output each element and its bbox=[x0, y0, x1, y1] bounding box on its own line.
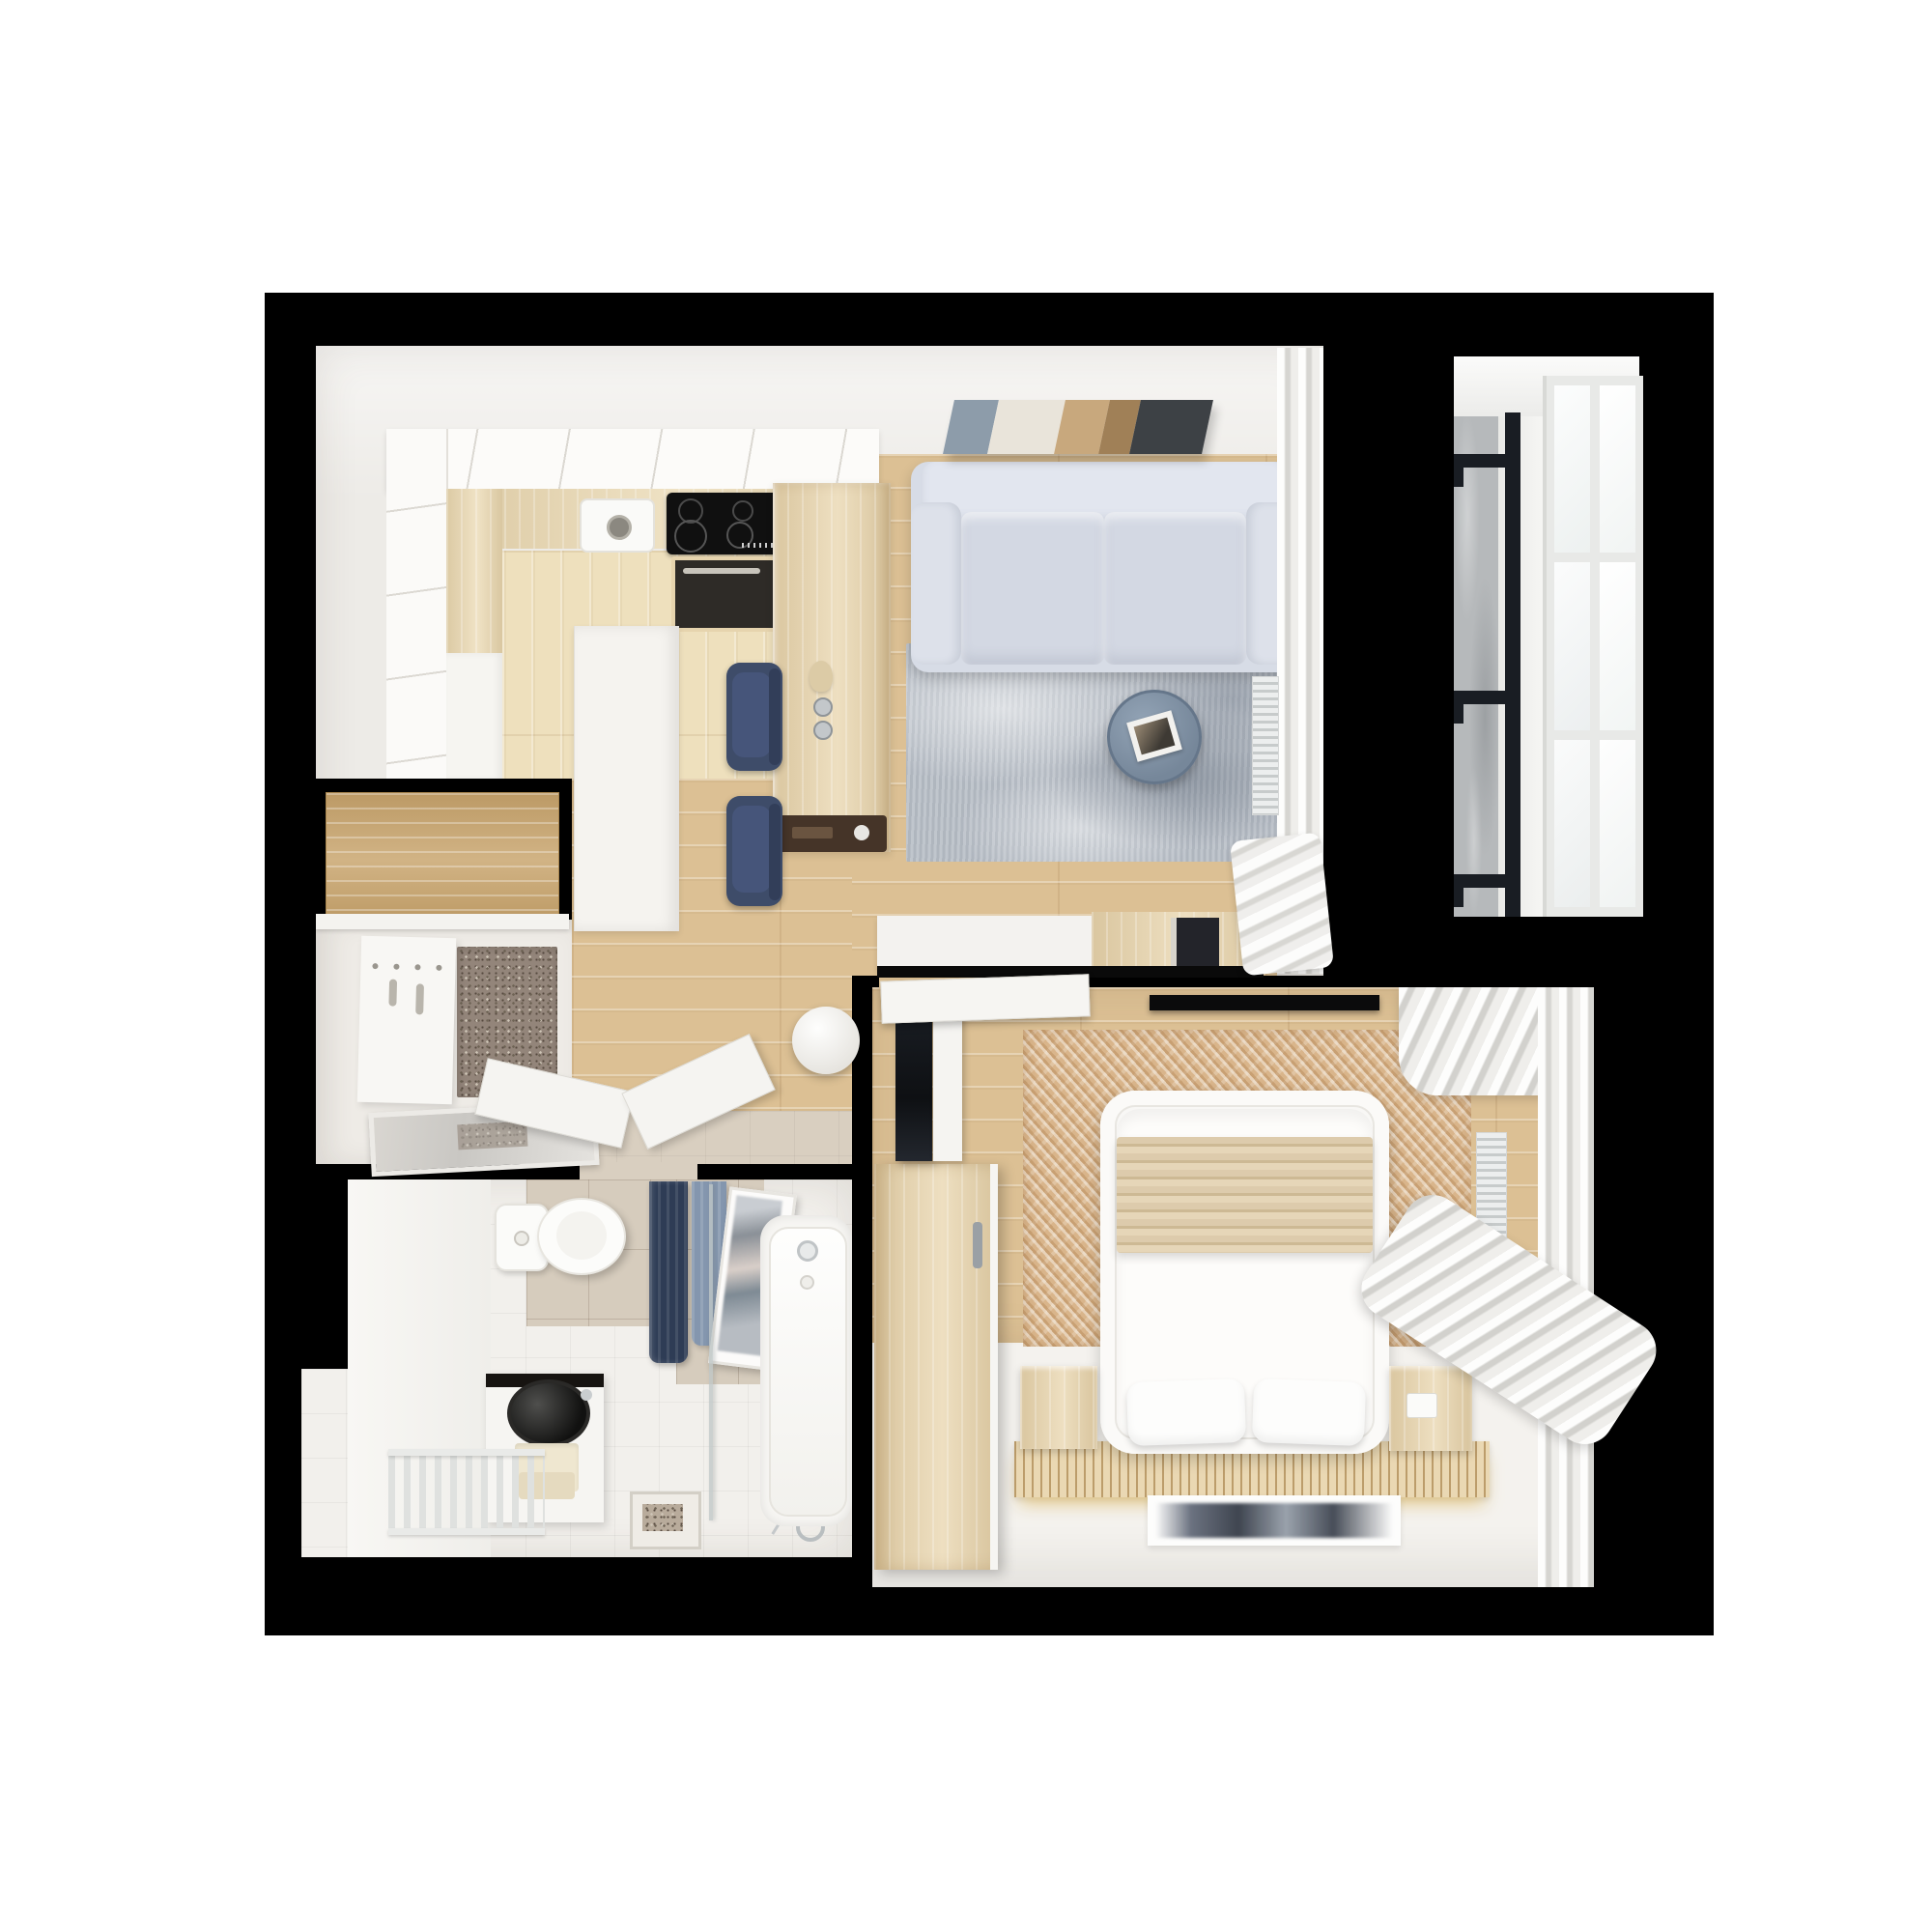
island-tray bbox=[779, 815, 887, 852]
bathroom-doorway-floor bbox=[580, 1162, 697, 1181]
coat-hook-1 bbox=[388, 980, 397, 1007]
tub-faucet bbox=[797, 1240, 818, 1262]
radiator-bars bbox=[388, 1455, 545, 1530]
pillow-right bbox=[1252, 1378, 1366, 1446]
window-pane bbox=[1554, 562, 1590, 729]
stool-back bbox=[769, 668, 781, 765]
radiator-rail-top bbox=[388, 1449, 545, 1456]
hallway-pouf bbox=[792, 1007, 860, 1074]
drain-grate bbox=[642, 1504, 683, 1531]
entry-threshold bbox=[316, 914, 569, 929]
leaning-tv-panel bbox=[895, 1005, 932, 1161]
window-pane bbox=[1600, 385, 1635, 553]
radiator-rail-bottom bbox=[388, 1528, 545, 1535]
base-cabinet-left bbox=[446, 653, 502, 781]
window-panes bbox=[1554, 385, 1635, 907]
railing-bar-3-cap bbox=[1454, 874, 1463, 907]
stool-back bbox=[769, 804, 781, 900]
toilet-bowl bbox=[537, 1198, 626, 1275]
stool-seat bbox=[732, 672, 771, 757]
wardrobe-handle bbox=[973, 1222, 982, 1268]
coat-hook-dot-1 bbox=[372, 963, 378, 969]
stool-seat bbox=[732, 806, 771, 893]
toilet-flush-button bbox=[514, 1231, 529, 1246]
floor-plan-canvas bbox=[0, 0, 1932, 1932]
railing-bar-2-cap bbox=[1454, 691, 1463, 724]
wardrobe bbox=[874, 1164, 998, 1570]
window-pane bbox=[1600, 562, 1635, 729]
oven-handle bbox=[683, 568, 760, 574]
sofa bbox=[911, 462, 1296, 672]
window-pane bbox=[1554, 740, 1590, 907]
tray-item bbox=[792, 827, 833, 838]
nightstand-right bbox=[1389, 1366, 1472, 1451]
sink-drain bbox=[607, 515, 632, 540]
railing-post bbox=[1505, 412, 1520, 917]
coat-panel bbox=[357, 936, 456, 1105]
console-book bbox=[1171, 918, 1219, 968]
entry-door bbox=[326, 792, 559, 916]
nightstand-left bbox=[1020, 1366, 1097, 1449]
floor-drain bbox=[630, 1492, 701, 1549]
living-area-rug bbox=[906, 643, 1289, 862]
sofa-arm-left bbox=[911, 502, 961, 665]
bathtub-basin bbox=[769, 1227, 847, 1517]
tub-drain bbox=[800, 1275, 814, 1290]
wardrobe-door-edge bbox=[990, 1164, 998, 1570]
art-segment-cream bbox=[987, 400, 1066, 454]
magazine-cover bbox=[1134, 718, 1176, 755]
kitchen-island bbox=[773, 483, 891, 852]
striped-blanket bbox=[1117, 1137, 1373, 1253]
countertop-left bbox=[446, 489, 502, 659]
bar-stool-1 bbox=[726, 663, 782, 771]
coat-hook-dot-4 bbox=[436, 965, 441, 971]
coat-hook-2 bbox=[415, 983, 424, 1014]
round-side-table bbox=[1107, 690, 1202, 784]
art-segment-charcoal bbox=[1129, 400, 1213, 454]
alarm-clock bbox=[1406, 1393, 1437, 1418]
kitchen-sink bbox=[580, 498, 655, 553]
oven bbox=[671, 556, 780, 632]
living-radiator bbox=[1252, 676, 1279, 815]
coat-hook-dot-3 bbox=[414, 964, 420, 970]
tall-cabinet bbox=[574, 626, 679, 931]
window-wall-frame bbox=[1543, 376, 1643, 917]
toilet-seat bbox=[556, 1211, 607, 1260]
folded-textiles-stack bbox=[1230, 832, 1334, 976]
bathroom-niche-floor bbox=[301, 1369, 348, 1557]
pillow-left bbox=[1126, 1378, 1246, 1446]
mirror-reflection bbox=[457, 1122, 527, 1151]
leaning-artwork bbox=[943, 400, 1213, 454]
coat-hook-dot-2 bbox=[393, 964, 399, 970]
floor-art-print bbox=[1148, 1495, 1401, 1546]
vanity-basin bbox=[507, 1379, 590, 1447]
bar-stool-2 bbox=[726, 796, 782, 906]
burner-back-right bbox=[732, 500, 753, 522]
tray-cup bbox=[854, 825, 869, 840]
burner-front-left bbox=[674, 520, 707, 553]
cooktop-controls bbox=[742, 543, 773, 548]
railing-bar-1-cap bbox=[1454, 454, 1463, 487]
window-pane bbox=[1554, 385, 1590, 553]
sofa-cushion-right bbox=[1104, 512, 1246, 665]
bathtub bbox=[760, 1215, 852, 1526]
double-bed bbox=[1100, 1091, 1389, 1454]
towel-radiator bbox=[388, 1445, 545, 1542]
console-desk-white bbox=[877, 916, 1092, 972]
tv-on-bedroom-wall bbox=[1150, 995, 1379, 1010]
cooktop bbox=[667, 493, 781, 554]
upper-cabinets-left-run bbox=[386, 429, 448, 781]
bedroom-door-leaf bbox=[880, 974, 1090, 1024]
shower-glass-panel bbox=[709, 1184, 713, 1520]
window-pane bbox=[1600, 740, 1635, 907]
upper-cabinets-top-run bbox=[386, 429, 879, 491]
concrete-pillar bbox=[1454, 416, 1498, 917]
hanging-mitt bbox=[810, 661, 833, 692]
sofa-cushion-left bbox=[961, 512, 1104, 665]
island-hook-1 bbox=[813, 697, 833, 717]
art-print-image bbox=[1155, 1503, 1393, 1538]
towel-navy bbox=[649, 1181, 688, 1363]
vanity-faucet bbox=[581, 1389, 592, 1401]
table-magazine bbox=[1126, 710, 1182, 762]
island-hook-2 bbox=[813, 721, 833, 740]
